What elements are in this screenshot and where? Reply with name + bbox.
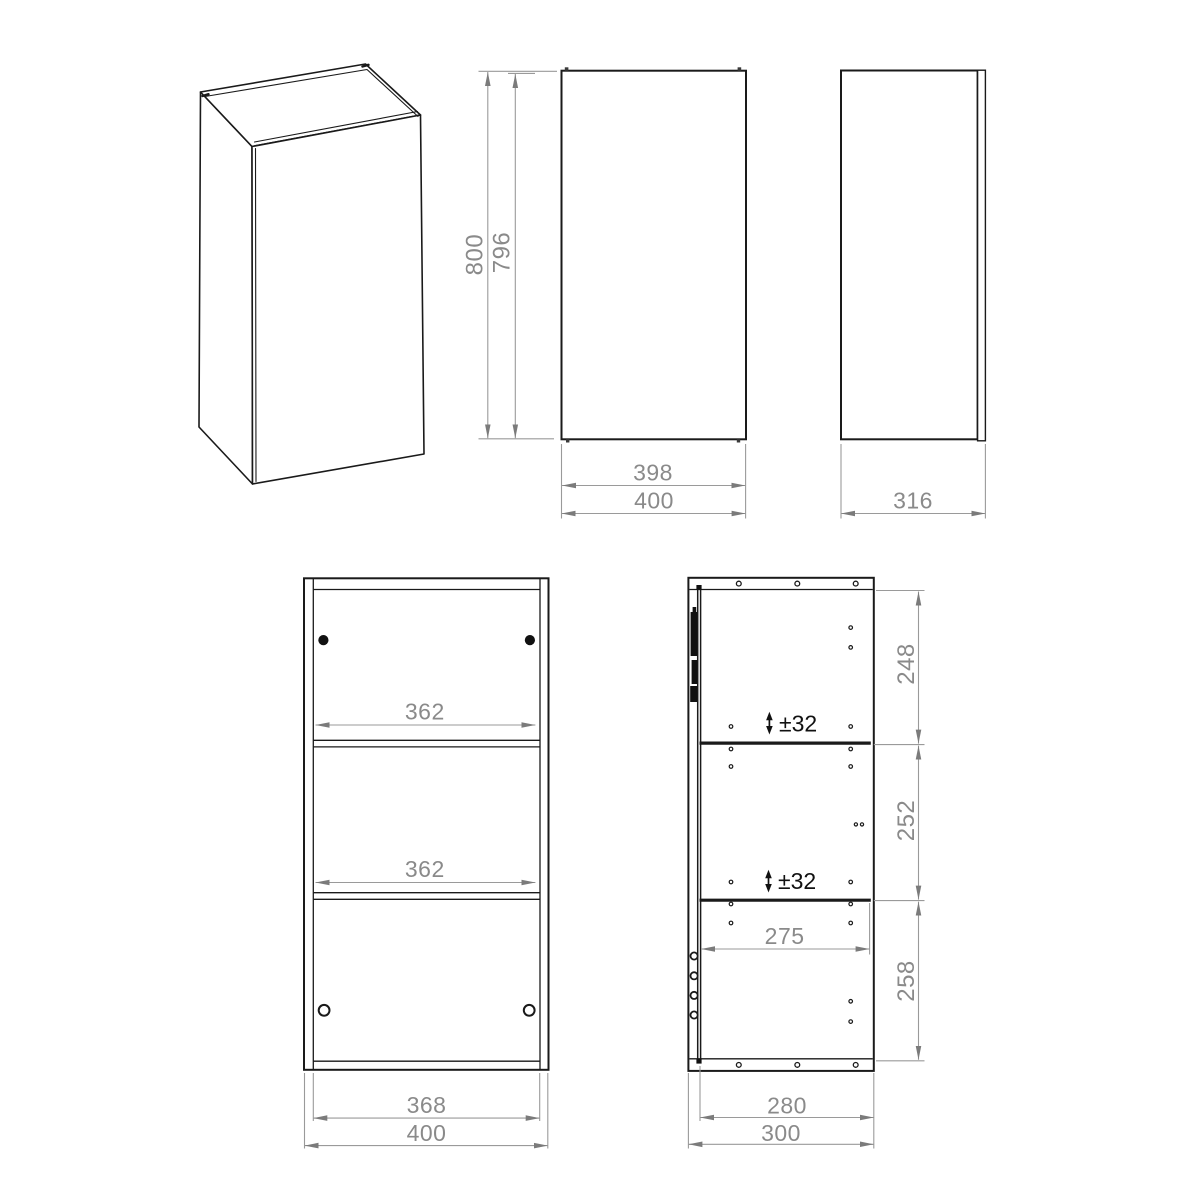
- svg-text:280: 280: [767, 1093, 807, 1119]
- svg-text:362: 362: [405, 698, 445, 724]
- svg-text:258: 258: [893, 960, 920, 1002]
- svg-text:398: 398: [633, 459, 673, 485]
- svg-text:248: 248: [893, 643, 920, 685]
- svg-text:400: 400: [634, 488, 674, 514]
- svg-text:368: 368: [407, 1092, 447, 1118]
- svg-text:362: 362: [405, 856, 445, 882]
- svg-text:796: 796: [488, 232, 515, 274]
- svg-text:252: 252: [893, 800, 920, 842]
- svg-text:275: 275: [765, 923, 805, 949]
- svg-text:±32: ±32: [779, 710, 817, 736]
- svg-text:300: 300: [761, 1120, 801, 1146]
- svg-text:±32: ±32: [778, 868, 816, 894]
- svg-text:400: 400: [407, 1120, 447, 1146]
- svg-text:316: 316: [893, 488, 933, 514]
- svg-text:800: 800: [461, 234, 488, 276]
